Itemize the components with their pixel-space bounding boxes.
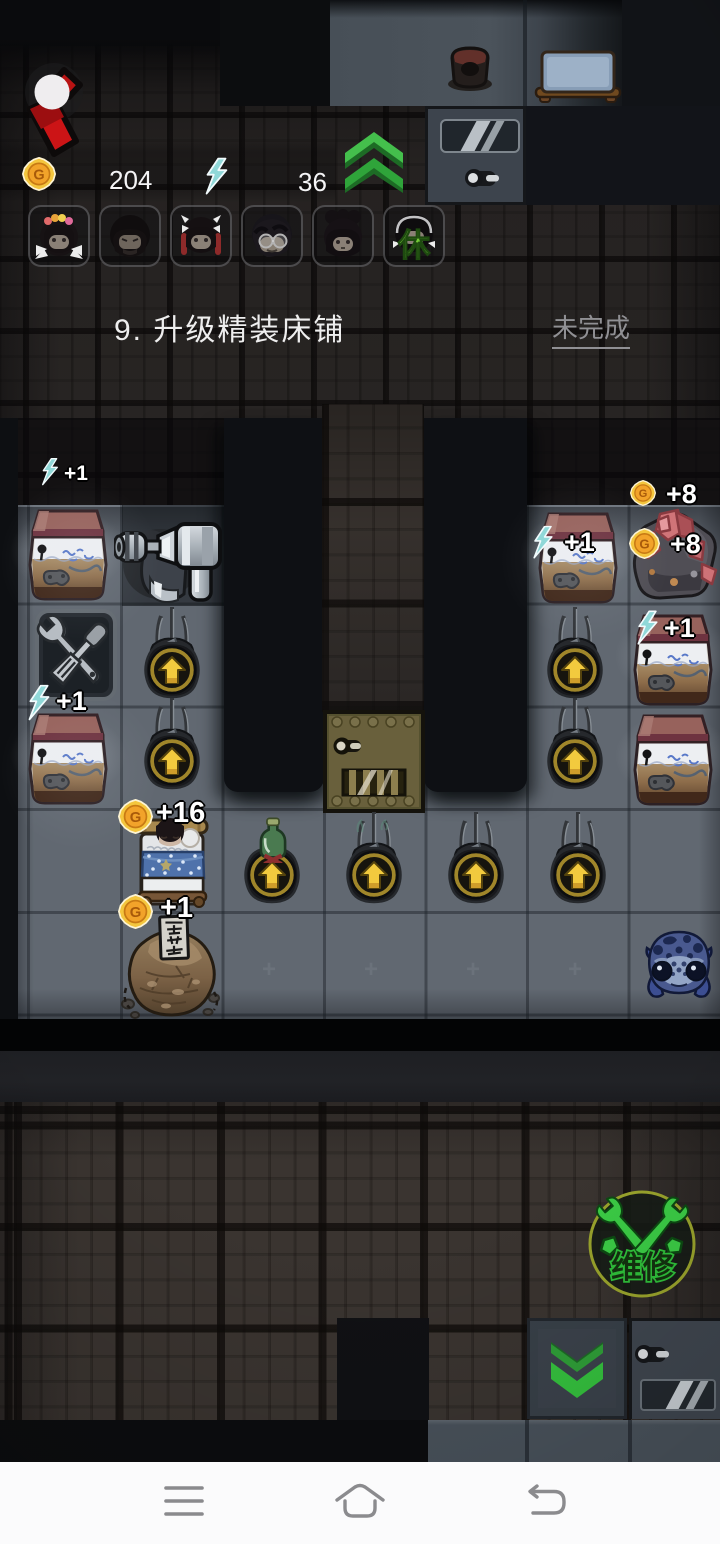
svg-text:维修: 维修 — [611, 1250, 675, 1285]
svg-text:休: 休 — [397, 227, 431, 263]
